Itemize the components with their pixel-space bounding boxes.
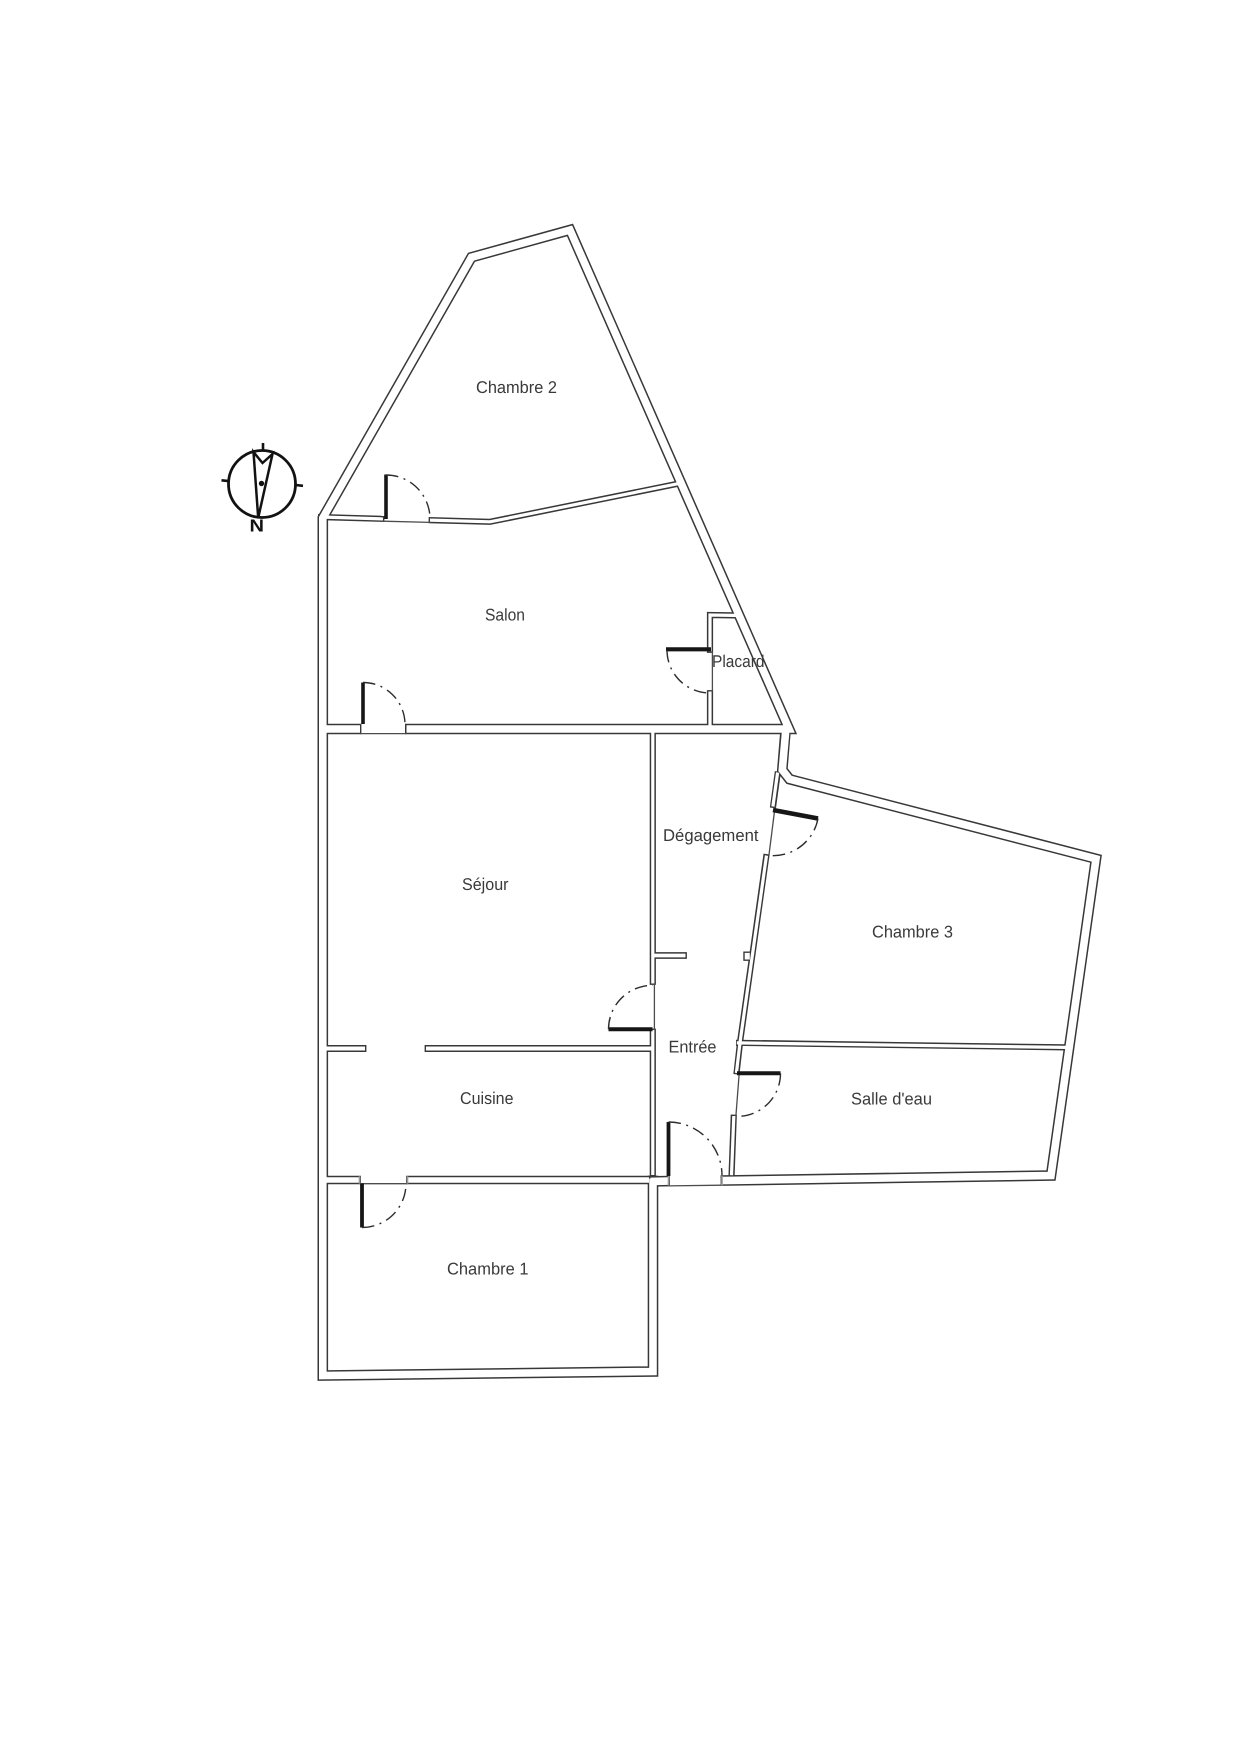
svg-text:Dégagement: Dégagement — [663, 826, 759, 845]
svg-text:Chambre 2: Chambre 2 — [476, 378, 557, 397]
svg-text:Séjour: Séjour — [462, 875, 509, 894]
svg-text:Salle d'eau: Salle d'eau — [851, 1090, 932, 1109]
svg-text:N: N — [250, 516, 265, 536]
svg-text:Placard: Placard — [712, 652, 765, 671]
svg-text:Chambre 1: Chambre 1 — [447, 1260, 529, 1279]
svg-text:Salon: Salon — [485, 606, 525, 625]
svg-text:Chambre 3: Chambre 3 — [872, 923, 953, 942]
svg-text:Cuisine: Cuisine — [460, 1089, 514, 1108]
svg-text:Entrée: Entrée — [669, 1038, 717, 1057]
